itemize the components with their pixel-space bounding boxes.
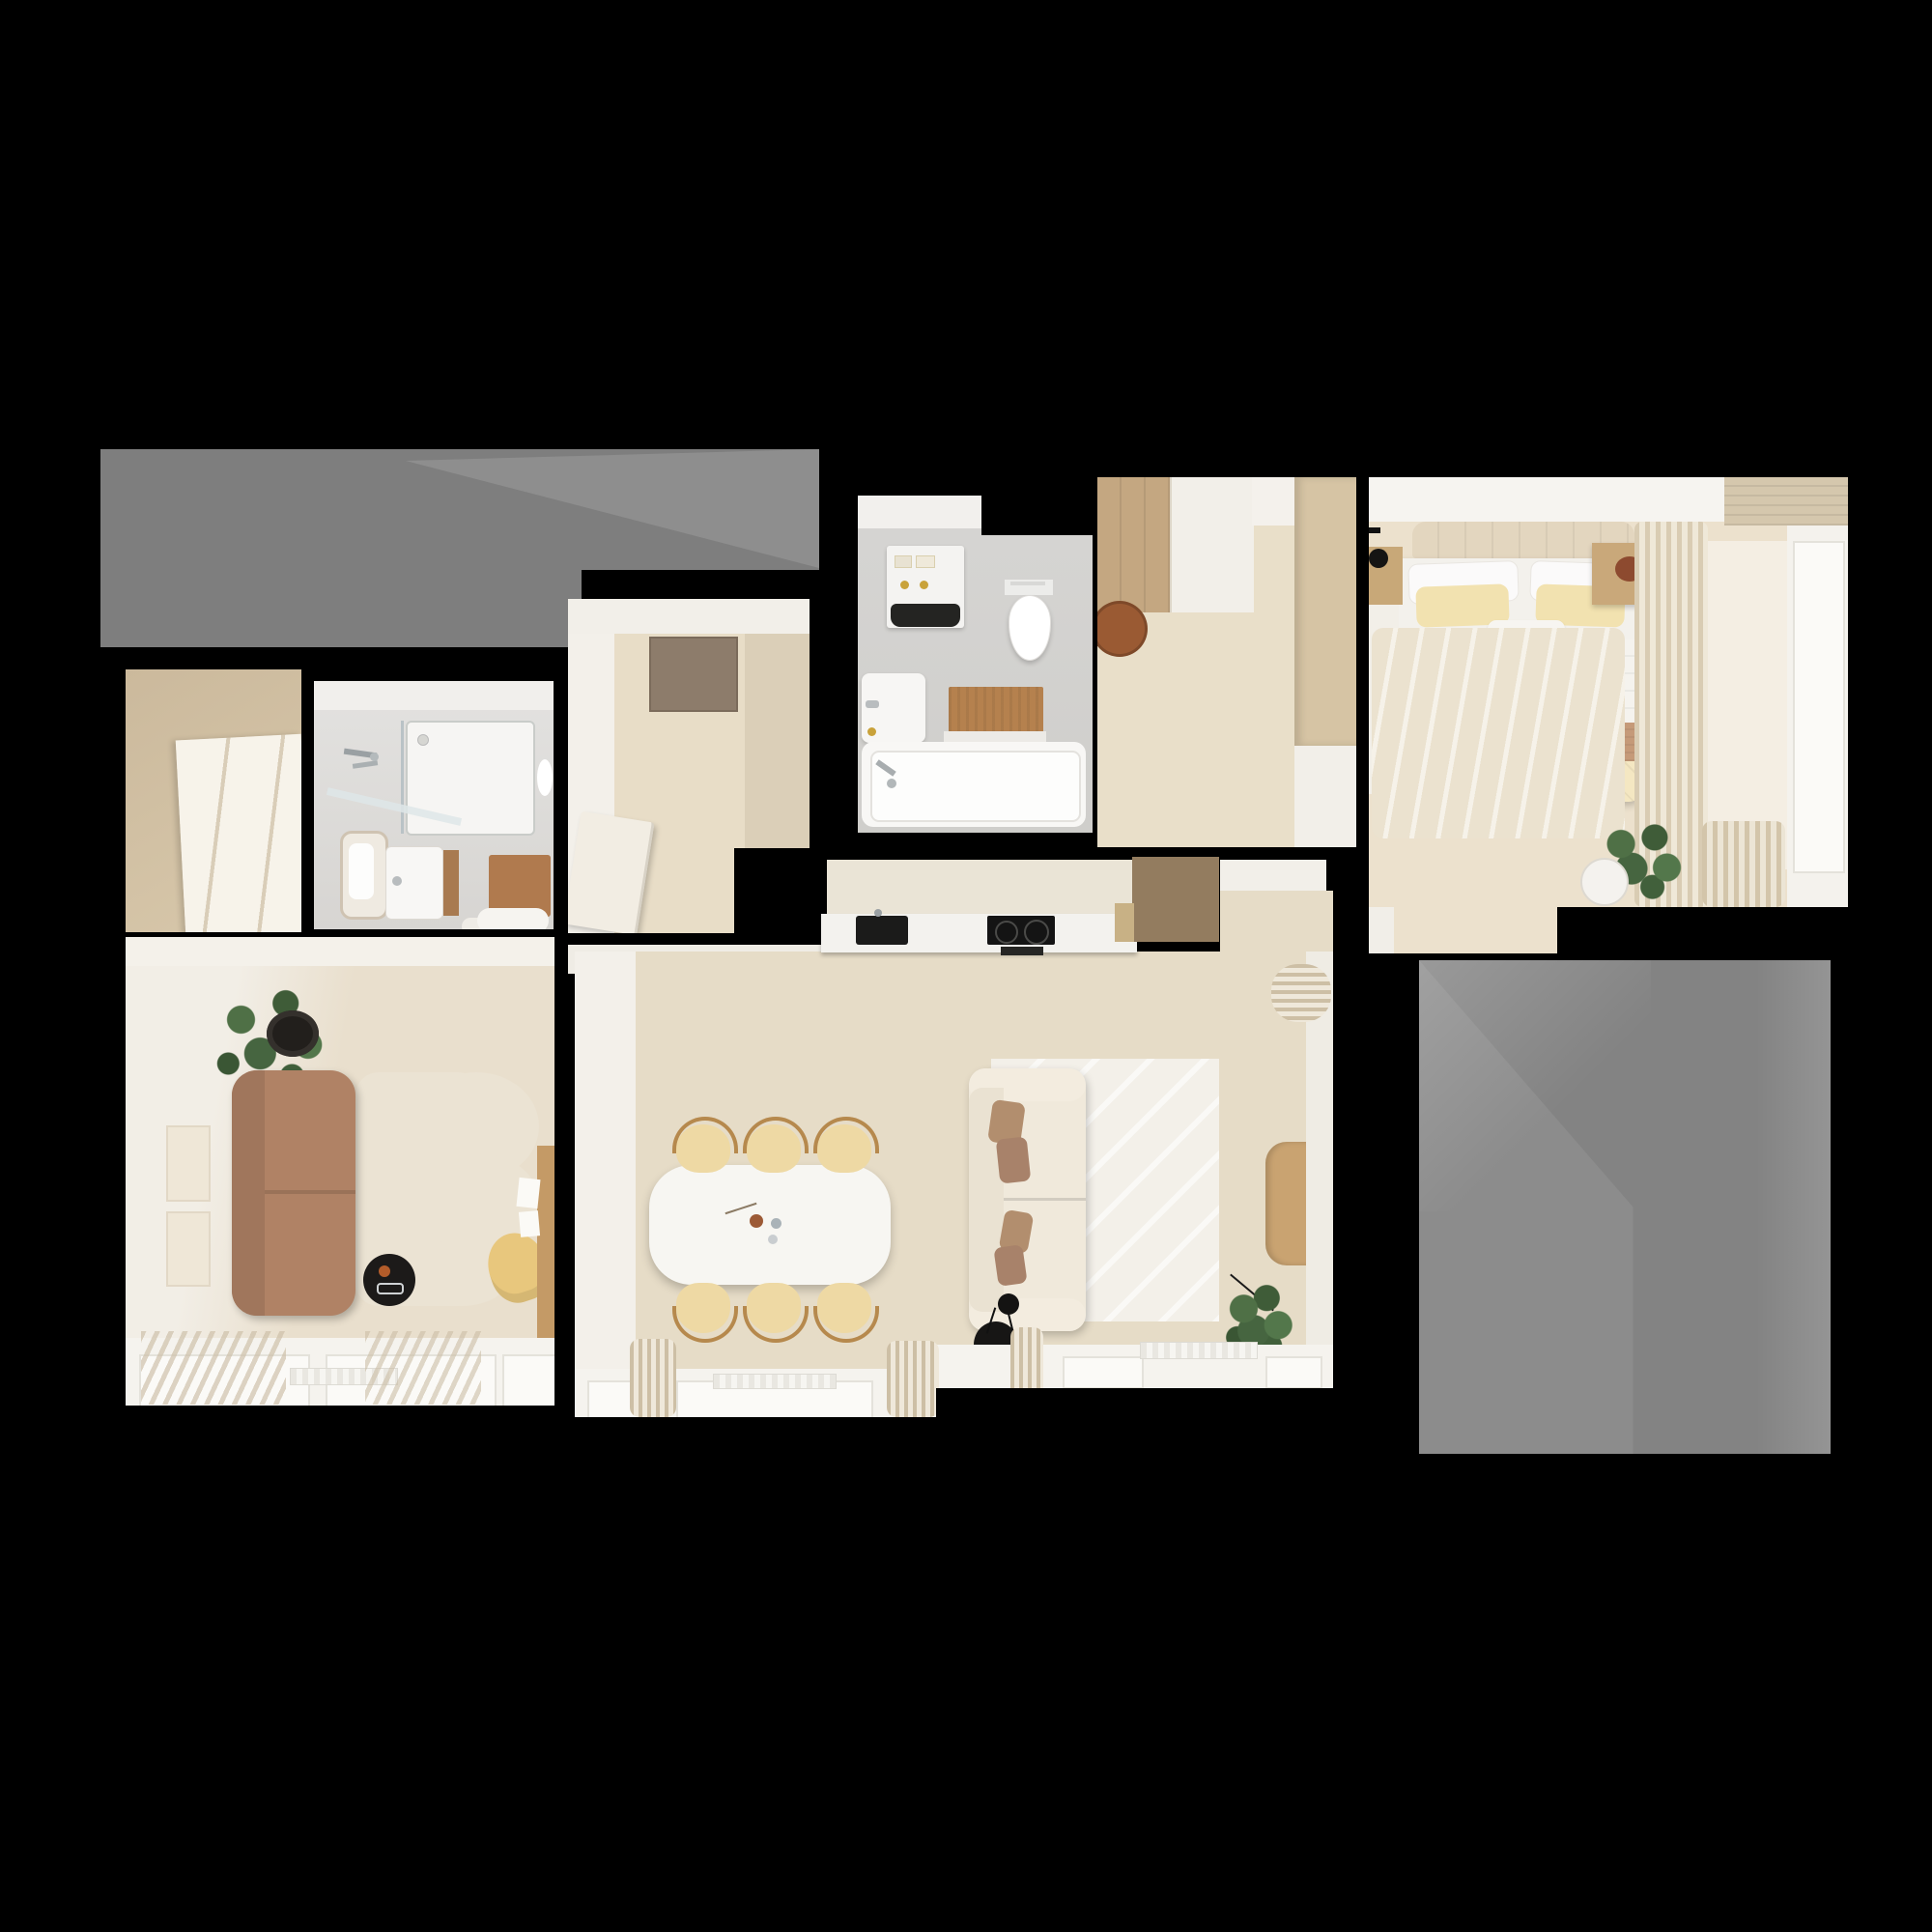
living-sofa (969, 1068, 1086, 1331)
side-table (363, 1254, 415, 1306)
sofa-pillow-4 (993, 1244, 1027, 1287)
bathroom-notch (981, 496, 1093, 535)
corridor-wall-right (745, 626, 810, 875)
lounge-wall-top (126, 937, 554, 966)
toiletries (895, 555, 912, 568)
curtain-bunch-sofa (1010, 1327, 1043, 1397)
curtain-bunch-top-right (1271, 964, 1331, 1022)
floor-plan (0, 0, 1932, 1932)
floor-light-patch (1706, 541, 1787, 869)
shower-glass-panel (401, 721, 404, 834)
lounge-curtain-streak-2 (365, 1331, 481, 1405)
sofa-pillow-2 (996, 1136, 1032, 1183)
desk-papers-2 (519, 1210, 540, 1237)
balcony-br-glow (1419, 960, 1651, 1211)
washing-machine (887, 546, 964, 628)
sliding-wardrobe (176, 734, 301, 932)
extension-wall-sliver (1369, 907, 1394, 953)
washbasin-faucet (392, 876, 402, 886)
dining-table (649, 1165, 891, 1285)
curtain-bunch-dining (630, 1339, 676, 1417)
wall-art-1 (166, 1125, 211, 1202)
entry-corridor (568, 599, 810, 933)
dining-chair-2 (747, 1124, 801, 1173)
table-vase (750, 1214, 763, 1228)
chair-arm (813, 1306, 879, 1343)
bedroom (1369, 477, 1848, 907)
roman-shade (1724, 477, 1848, 526)
shower-head (370, 753, 379, 761)
living-top-right-floor (1220, 891, 1333, 952)
shower-drain (417, 734, 429, 746)
dining-chair-5 (747, 1283, 801, 1333)
wall-step-bottom-right (936, 1388, 1333, 1417)
vase-sprig (725, 1203, 757, 1214)
hall-tall-cabinet (1294, 477, 1356, 746)
living-wall-left (575, 952, 636, 1417)
chair-arm (743, 1306, 809, 1343)
table-orange-item (379, 1265, 390, 1277)
basin-faucet (866, 700, 879, 708)
vessel-sink (340, 831, 388, 920)
lounge-desk (537, 1146, 554, 1354)
burner-2 (1024, 920, 1049, 945)
table-glasses (377, 1283, 404, 1294)
table-cup-1 (771, 1218, 781, 1229)
shower-tray (406, 721, 535, 836)
living-window-2 (1265, 1356, 1322, 1389)
hall-wardrobe-white (1170, 477, 1254, 612)
lounge-sofa (232, 1070, 355, 1316)
bedroom-rug (1372, 628, 1625, 838)
walk-in-closet (126, 669, 301, 932)
dining-chair-4 (676, 1283, 730, 1333)
shower-hose (353, 760, 378, 769)
bathtub (862, 742, 1086, 827)
cooktop-vent (1001, 947, 1043, 955)
corridor-wall-chunk (734, 848, 810, 933)
lounge (126, 937, 554, 1406)
chair-arm (672, 1306, 738, 1343)
wall-art-2 (166, 1211, 211, 1287)
bedroom-curtain-bunch (1702, 821, 1785, 907)
kitchen-corner-cabinet (1132, 857, 1219, 942)
lounge-curtain-streak-1 (141, 1331, 286, 1405)
sofa-cushion-seam (265, 1190, 355, 1194)
doormat (649, 637, 738, 712)
toilet-bowl (1009, 595, 1051, 661)
living-dining-room (575, 952, 1333, 1417)
bathroom-wall-top (858, 496, 981, 528)
floor-lamp-shade (998, 1293, 1019, 1315)
gold-jar (900, 581, 909, 589)
cooktop (987, 916, 1055, 945)
sofa-seat-seam (1004, 1198, 1086, 1201)
burner-1 (995, 921, 1018, 944)
bathroom-wall-top (314, 681, 554, 710)
toilet-flush-plate (1010, 582, 1045, 585)
gold-jar-2 (920, 581, 928, 589)
desk-papers (516, 1178, 540, 1208)
kitchen-backsplash (827, 860, 1137, 914)
curtain-bunch-mid (887, 1341, 939, 1417)
cabinet-light-edge (1115, 903, 1134, 942)
lounge-window-3 (502, 1354, 554, 1406)
tub-shower-head (887, 779, 896, 788)
lounge-plant-pot (267, 1010, 319, 1057)
bedroom-plant-pot (1580, 858, 1629, 906)
dining-chair-1 (676, 1124, 730, 1173)
tv-console (1265, 1142, 1308, 1265)
pendant-mount-left (1369, 527, 1380, 533)
washbasin (385, 846, 443, 920)
entry-hall (1097, 477, 1356, 847)
bedroom-window (1793, 541, 1845, 873)
wall-hung-toilet (537, 759, 553, 796)
leaning-door (568, 811, 655, 933)
shower-bathroom (314, 681, 554, 929)
corridor-wall-top (568, 599, 810, 634)
living-radiator (1140, 1342, 1258, 1359)
vessel-sink-basin (349, 843, 374, 899)
kitchen-sink (856, 916, 908, 945)
bathtub-basin (870, 751, 1081, 822)
towels (477, 908, 549, 929)
toiletries-2 (916, 555, 935, 568)
hall-wardrobe-wood (1097, 477, 1170, 612)
chair-arm (813, 1117, 879, 1153)
chair-arm (672, 1117, 738, 1153)
living-window-1 (1063, 1356, 1144, 1389)
pendant-lamp-left (1369, 549, 1388, 568)
balcony-br-light-band (1756, 960, 1831, 1454)
chair-arm (743, 1117, 809, 1153)
living-top-right-wall (1220, 860, 1326, 891)
dining-chair-6 (817, 1283, 871, 1333)
washer-door (891, 604, 960, 627)
family-bathroom (858, 496, 1093, 833)
gold-accent (867, 727, 876, 736)
sofa-backrest (232, 1070, 265, 1316)
dining-radiator (713, 1374, 837, 1389)
vanity-wood (443, 850, 459, 916)
kitchen-faucet (874, 909, 882, 917)
hall-wall-right-low (1294, 746, 1356, 847)
dining-chair-3 (817, 1124, 871, 1173)
bedroom-floor-extension (1369, 907, 1557, 953)
pouf (1097, 601, 1148, 657)
table-cup-2 (768, 1235, 778, 1244)
